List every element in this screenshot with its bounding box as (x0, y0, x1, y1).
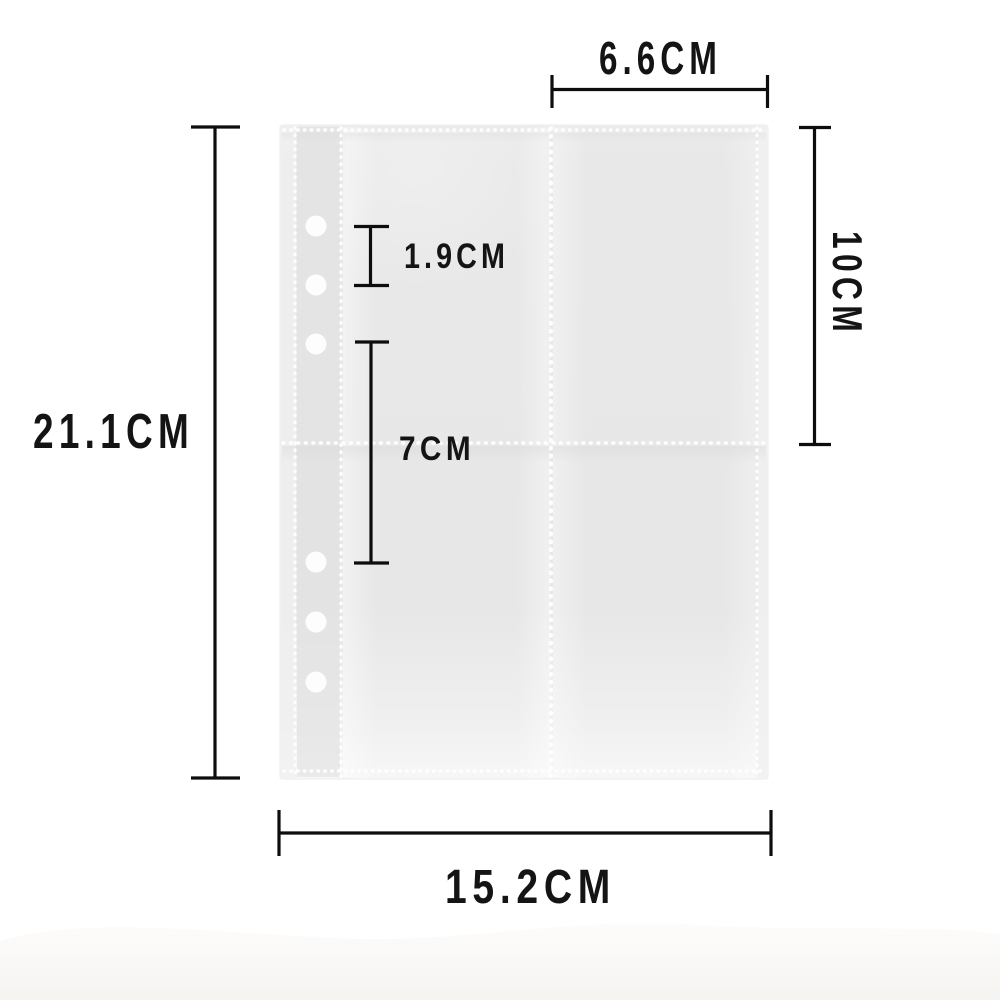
svg-text:7CM: 7CM (399, 430, 475, 468)
svg-text:15.2CM: 15.2CM (445, 861, 616, 914)
svg-text:21.1CM: 21.1CM (33, 405, 194, 459)
svg-text:1.9CM: 1.9CM (404, 237, 509, 276)
svg-text:6.6CM: 6.6CM (599, 32, 722, 84)
svg-text:10CM: 10CM (824, 231, 871, 337)
